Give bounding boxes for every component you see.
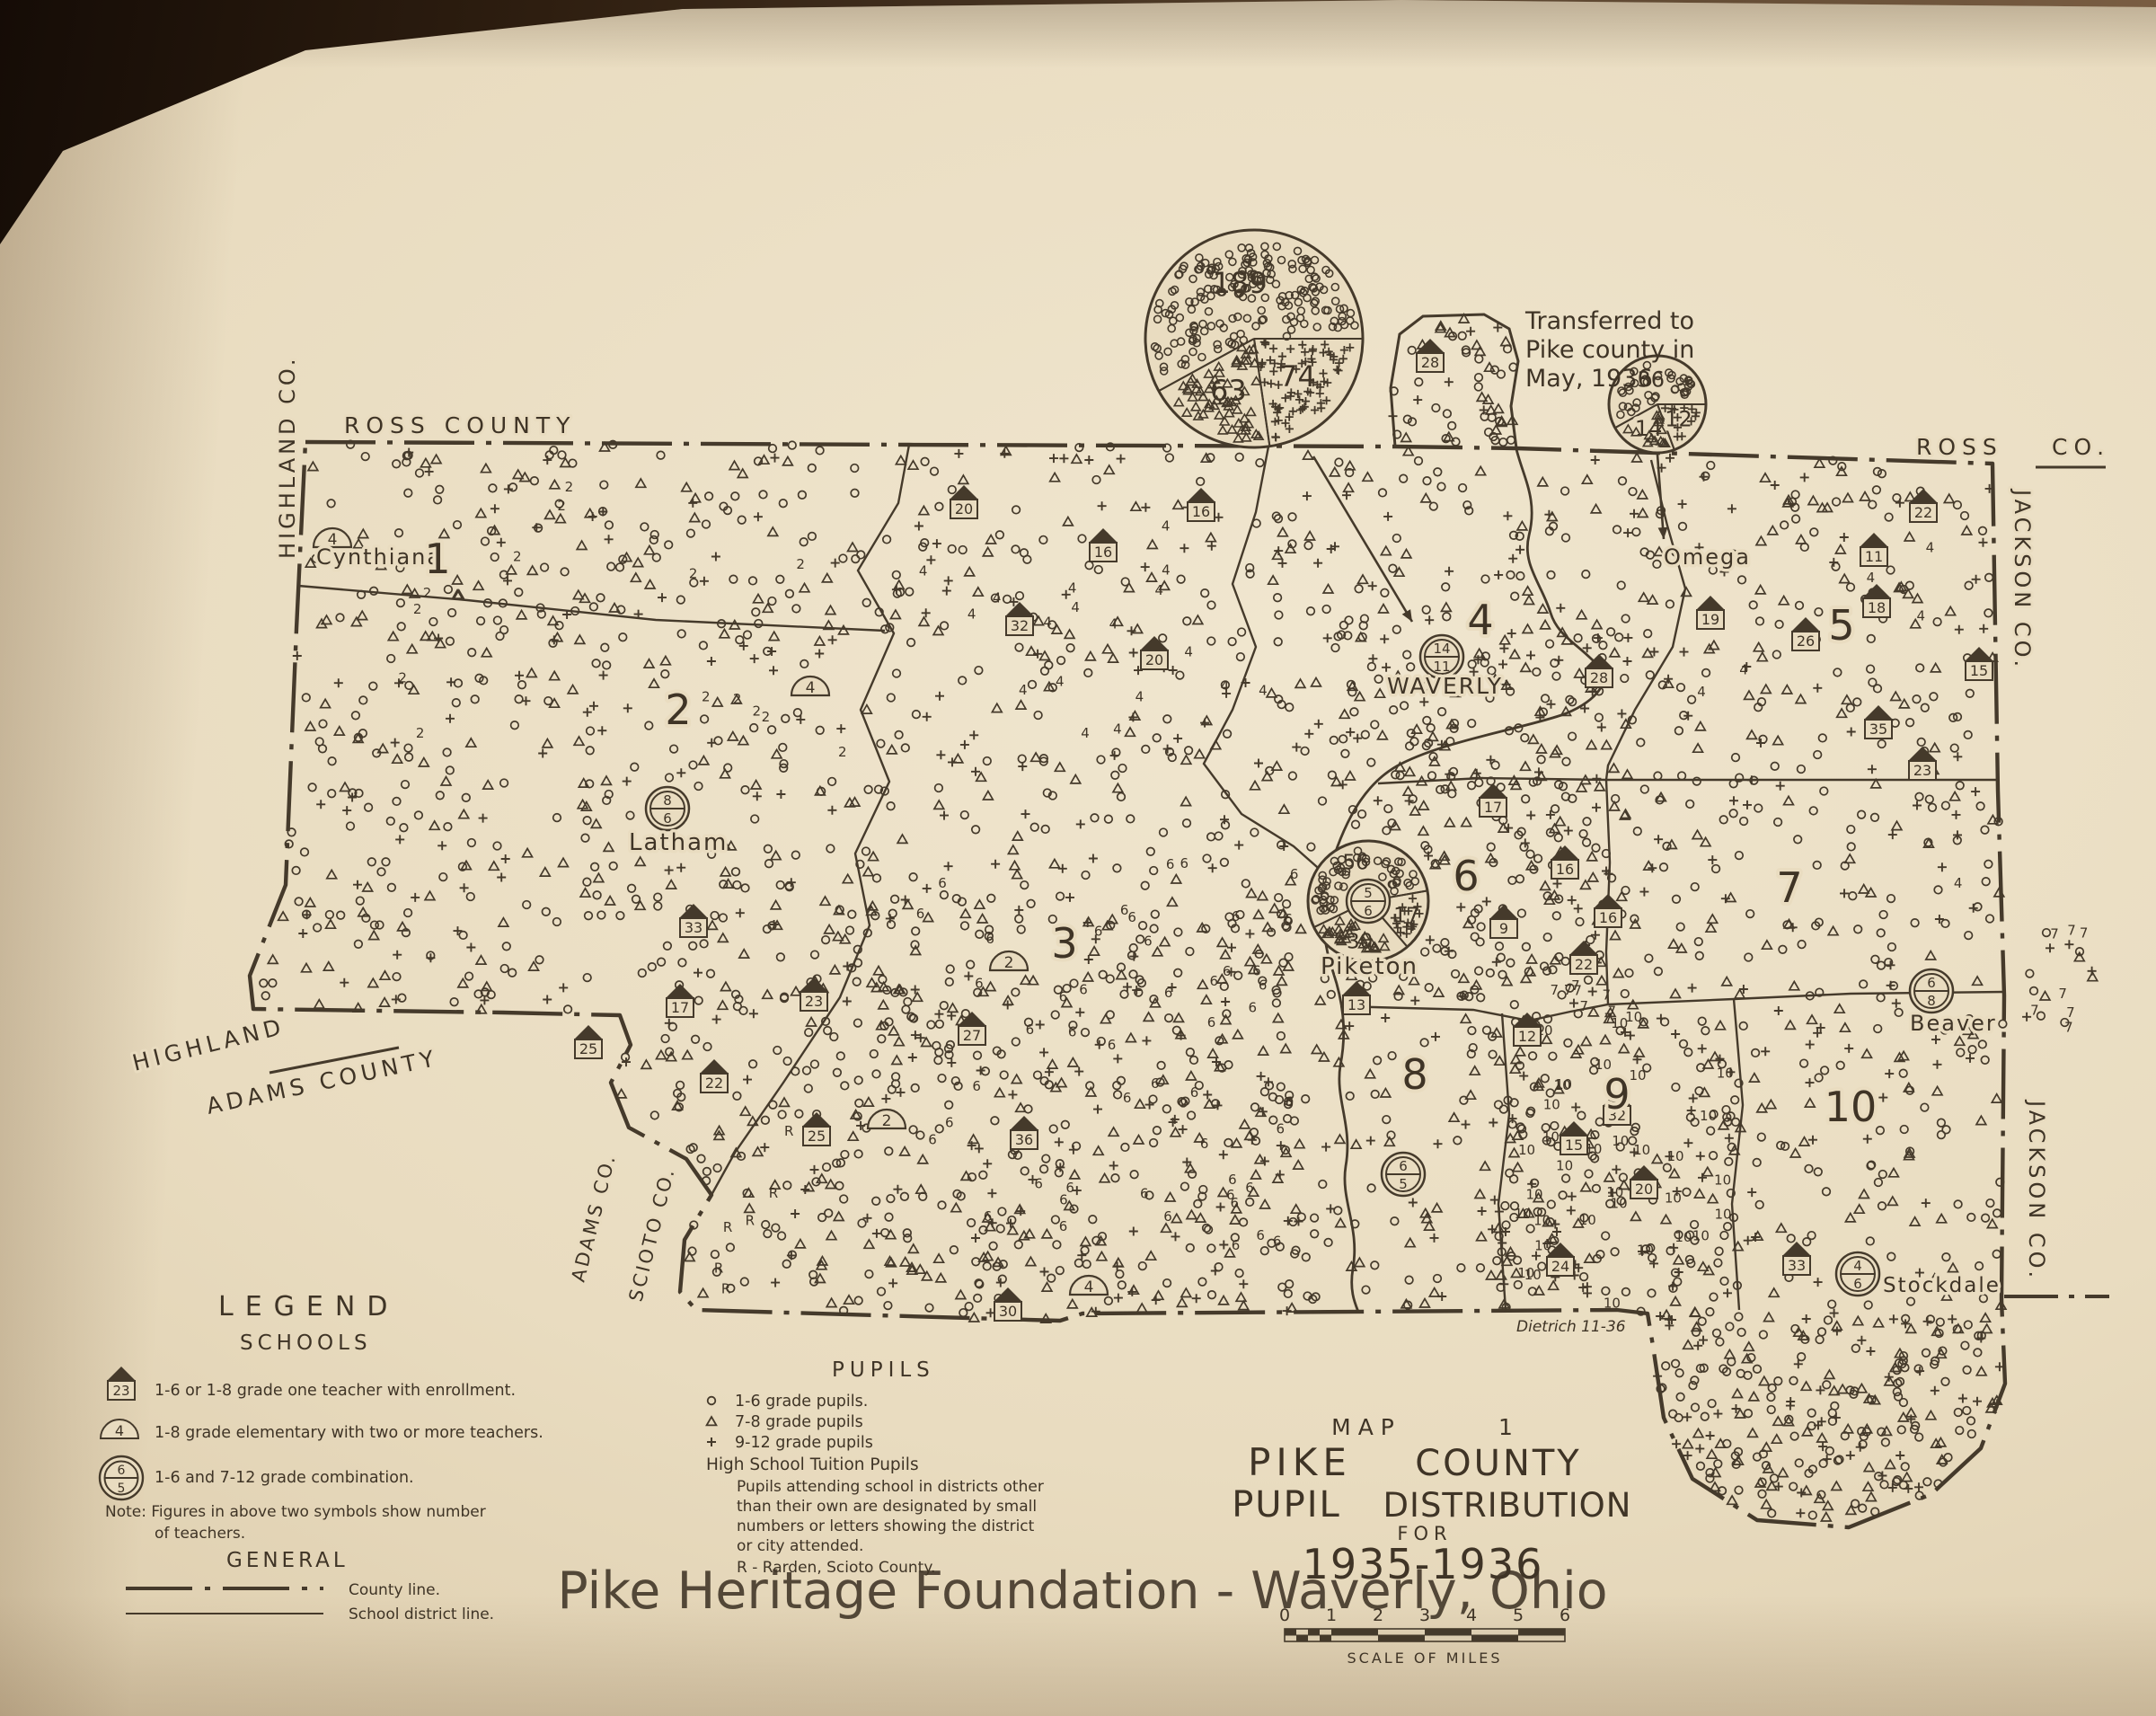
scale-caption: SCALE OF MILES [1347,1650,1503,1667]
pupil-dot-field: 6R442266444766102106106261026476R6R44446… [260,314,2098,1521]
tuition-district-numeral: 6 [1140,1185,1149,1201]
tuition-district-numeral: 4 [1917,607,1926,624]
combo-bottom-number: 6 [1853,1276,1862,1292]
tuition-district-numeral: 10 [1625,1009,1642,1025]
tuition-district-numeral: 6 [1059,989,1068,1005]
school-house-symbol: 26 [1791,617,1820,650]
tuition-district-numeral: 10 [1714,1207,1731,1223]
combo-top-number: 6 [1399,1158,1408,1174]
pie-to-omega-arrow-head [1658,527,1668,539]
tuition-district-numeral: 10 [1612,1133,1629,1149]
combo-bottom-number: 5 [1399,1176,1408,1192]
school-enrollment-number: 9 [1499,920,1508,937]
school-house-symbol: 23 [800,977,828,1011]
school-enrollment-number: 15 [1565,1137,1583,1154]
scale-bar-segment [1518,1629,1565,1635]
tuition-district-numeral: 4 [993,590,1002,606]
tuition-district-numeral: 2 [689,566,698,582]
school-enrollment-number: 28 [1590,669,1608,686]
tuition-district-numeral: 4 [1109,616,1118,632]
pupils-title: PUPILS [832,1358,935,1382]
house-roof-icon [1909,489,1938,503]
tuition-district-numeral: 6 [1273,1234,1282,1250]
tuition-district-numeral: 2 [733,691,742,707]
pupils-item-1-text: 1-6 grade pupils. [735,1393,868,1411]
house-roof-icon [1862,584,1891,598]
town-label: Omega [1664,544,1751,570]
teacher-count-number: 2 [882,1112,892,1130]
tuition-district-numeral: 4 [1697,684,1706,700]
house-roof-icon [679,904,708,918]
combo-top-number: 6 [1927,975,1936,991]
district-number: 6 [1453,852,1479,900]
school-enrollment-number: 22 [1914,504,1932,521]
school-house-symbol: 22 [1569,941,1598,974]
school-district-line [1606,460,1685,780]
tuition-district-numeral: 6 [1249,1000,1258,1016]
school-house-symbol: 20 [950,485,978,518]
tuition-district-numeral: 4 [1081,725,1090,741]
tuition-district-numeral: 6 [1164,985,1173,1001]
school-district-line [1204,447,1324,873]
school-house-symbol: 16 [1089,528,1118,562]
town-label: Piketon [1321,953,1418,980]
school-house-symbol: 33 [679,904,708,937]
county-label: JACKSON CO. [2010,488,2035,670]
tuition-line-3: numbers or letters showing the district [737,1517,1035,1535]
tuition-district-numeral: R [721,1280,730,1296]
district-number: 7 [1776,863,1802,912]
school-enrollment-number: 35 [1869,721,1887,738]
tuition-district-numeral: R [784,1123,793,1139]
school-house-symbol: 35 [1864,705,1893,739]
tuition-district-numeral: 7 [2080,924,2089,941]
transferred-note-line-2: Pike county in [1525,336,1694,364]
tuition-district-numeral: 10 [1524,1267,1542,1283]
house-roof-icon [802,1112,831,1127]
pupils-item-3-text: 9-12 grade pupils [735,1434,873,1452]
grade7-8-triangle-icon [707,1417,717,1425]
tuition-district-numeral: 4 [1155,582,1164,598]
tuition-district-numeral: 6 [985,931,994,947]
house-roof-icon [1696,596,1725,610]
school-house-symbol: 11 [1860,533,1888,566]
tuition-district-numeral: 6 [1144,933,1153,949]
school-district-line [711,445,909,1195]
cartographer-signature: Dietrich 11-36 [1516,1318,1626,1336]
tuition-district-numeral: 4 [1867,570,1876,586]
tuition-district-numeral: 7 [2067,923,2076,939]
tuition-district-numeral: 6 [1284,911,1293,927]
legend-combo-top: 6 [118,1464,126,1478]
tuition-district-numeral: 10 [1717,1066,1734,1082]
house-roof-icon [1782,1242,1811,1256]
legend-semicircle-number: 4 [115,1422,124,1439]
tuition-district-numeral: 4 [968,606,976,623]
school-house-symbol: 19 [1696,596,1725,629]
house-roof-icon [700,1059,729,1074]
legend-combination-icon: 6 5 [100,1456,143,1499]
county-label: HIGHLAND CO. [275,356,300,559]
tuition-district-numeral: 4 [1259,683,1268,699]
tuition-district-numeral: 6 [1108,1037,1117,1053]
county-label: ROSS COUNTY [344,412,576,438]
grade1-6-dot-icon [708,1397,716,1405]
tuition-district-numeral: 2 [398,670,407,686]
map-word: MAP [1331,1414,1401,1440]
tuition-district-numeral: 2 [413,601,422,617]
tuition-district-numeral: 10 [1543,1097,1560,1113]
house-roof-icon [574,1025,603,1039]
pie-slice-value: 14 [1635,416,1663,441]
tuition-district-numeral: 10 [1533,1213,1551,1229]
tuition-district-numeral: 10 [1525,1187,1542,1203]
tuition-district-numeral: 2 [796,556,805,572]
tuition-district-numeral: 2 [513,548,522,564]
school-house-symbol: 22 [1909,489,1938,522]
tuition-district-numeral: 7 [1571,977,1580,994]
school-house-symbol: 17 [1479,783,1507,817]
teacher-count-number: 4 [806,679,816,697]
school-house-symbol: 32 [1005,602,1034,635]
legend-item-1-text: 1-6 or 1-8 grade one teacher with enroll… [155,1382,516,1400]
town-label: Stockdale [1883,1274,2001,1297]
tuition-district-numeral: 4 [1071,599,1080,615]
tuition-district-numeral: 4 [1739,661,1748,677]
tuition-district-numeral: 4 [1954,875,1963,891]
school-house-symbol: 15 [1965,647,1993,680]
school-enrollment-number: 24 [1551,1258,1569,1275]
school-district-line [298,586,885,631]
tuition-district-numeral: 6 [1123,1090,1132,1106]
tuition-district-numeral: 4 [1135,689,1144,705]
school-house-symbol: 33 [1782,1242,1811,1275]
county-label: JACKSON CO. [2024,1099,2049,1281]
school-house-symbol: 20 [1630,1165,1658,1199]
combination-school-symbol: 68 [1910,969,1953,1013]
house-roof-icon [1569,941,1598,955]
school-enrollment-number: 20 [955,500,973,517]
house-roof-icon [1010,1116,1038,1130]
transferred-note-line-3: May, 1936 [1525,365,1653,393]
school-enrollment-number: 36 [1015,1131,1033,1148]
school-house-symbol: 28 [1585,654,1613,687]
title-pike: PIKE [1248,1440,1352,1484]
tuition-district-numeral: 6 [1223,963,1232,979]
tuition-district-numeral: 6 [1094,924,1103,940]
house-roof-icon [1140,636,1169,650]
elementary-school-symbol: 2 [990,951,1028,972]
tuition-district-numeral: R [746,1213,755,1229]
tuition-district-numeral: 6 [1034,1175,1043,1191]
tuition-district-numeral: 7 [1580,998,1589,1014]
elementary-school-symbol: 4 [791,677,829,697]
district-number: 1 [424,535,450,583]
school-house-symbol: 25 [574,1025,603,1058]
legend-general-title: GENERAL [226,1549,349,1572]
school-house-symbol: 25 [802,1112,831,1145]
tuition-district-numeral: 10 [1629,1067,1646,1084]
school-house-symbol: 17 [666,984,694,1017]
district-number: 8 [1401,1050,1427,1099]
house-roof-icon [1416,339,1445,353]
combo-top-number: 4 [1853,1258,1862,1274]
tuition-district-numeral: 2 [416,725,425,741]
tuition-district-numeral: 2 [753,703,762,719]
school-enrollment-number: 23 [1913,762,1931,779]
tuition-district-numeral: 2 [838,744,847,760]
legend-item-2-text: 1-8 grade elementary with two or more te… [155,1424,543,1442]
scale-bar-segment [1471,1635,1518,1641]
school-enrollment-number: 28 [1421,354,1439,371]
pupils-item-2-text: 7-8 grade pupils [735,1413,863,1431]
legend-one-teacher-house-icon: 23 [107,1367,136,1400]
pupil-dots-grade-1-6 [260,332,2083,1519]
school-enrollment-number: 23 [805,993,823,1010]
town-label: Latham [629,829,728,856]
house-roof-icon [107,1367,136,1381]
tuition-district-numeral: 6 [1232,908,1241,924]
tuition-line-4: or city attended. [737,1537,863,1555]
tuition-district-numeral: 6 [984,1208,993,1225]
county-label: ROSS [1916,434,2003,460]
house-roof-icon [1908,747,1937,761]
house-roof-icon [1489,905,1518,919]
tuition-district-numeral: 10 [1700,1108,1717,1124]
teacher-count-number: 2 [1004,954,1014,972]
combination-school-symbol: 46 [1836,1252,1879,1296]
school-house-symbol: 16 [1551,845,1579,879]
legend-schools-title: SCHOOLS [240,1331,372,1355]
legend-note-line-2: of teachers. [155,1525,245,1543]
tuition-district-numeral: 10 [1674,1229,1692,1245]
tuition-district-numeral: 6 [1245,1180,1254,1196]
legend-district-line-label: School district line. [349,1605,494,1623]
tuition-district-numeral: 6 [1151,1075,1160,1092]
tuition-district-numeral: 6 [1059,1218,1068,1234]
district-number: 10 [1825,1083,1878,1131]
tuition-district-numeral: 6 [1226,1187,1235,1203]
tuition-district-numeral: 7 [2066,1004,2075,1021]
tuition-district-numeral: 7 [2030,1003,2039,1019]
tuition-district-numeral: 6 [1127,909,1136,925]
tuition-title: High School Tuition Pupils [706,1455,919,1474]
tuition-district-numeral: 6 [1068,1023,1077,1039]
tuition-district-numeral: 10 [1542,1129,1560,1145]
county-label: ADAMS CO. [568,1151,621,1284]
tuition-district-numeral: 10 [1637,1243,1654,1259]
house-roof-icon [1089,528,1118,543]
tuition-district-numeral: 10 [1692,1227,1710,1243]
school-enrollment-number: 20 [1145,651,1163,668]
tuition-district-numeral: 10 [1604,1295,1621,1311]
tuition-district-numeral: 6 [1079,982,1088,998]
tuition-district-numeral: 6 [972,1078,981,1094]
school-enrollment-number: 27 [963,1027,981,1044]
legend-county-line-label: County line. [349,1581,440,1599]
house-roof-icon [1187,488,1215,502]
school-house-symbol: 36 [1010,1116,1038,1149]
school-enrollment-number: 16 [1094,544,1112,561]
school-district-line [1606,780,1610,1004]
elementary-school-symbol: 2 [868,1110,906,1130]
tuition-district-numeral: 6 [1232,1237,1241,1253]
combination-school-symbol: 86 [646,787,689,830]
tuition-district-numeral: 6 [1190,1084,1199,1101]
school-enrollment-number: 17 [671,999,689,1016]
town-label: WAVERLY [1387,673,1503,699]
tuition-district-numeral: 6 [1166,856,1175,872]
district-number: 3 [1051,919,1077,968]
school-enrollment-number: 25 [808,1128,826,1145]
tuition-district-numeral: 7 [1551,982,1560,998]
tuition-district-numeral: 7 [1603,986,1612,1003]
tuition-district-numeral: 4 [1221,678,1230,694]
tuition-district-numeral: 6 [916,906,925,922]
county-label: CO. [2052,434,2110,460]
house-roof-icon [1342,981,1371,995]
scale-bar-segment [1320,1635,1331,1641]
school-enrollment-number: 18 [1868,599,1886,616]
tuition-district-numeral: 10 [1518,1142,1535,1158]
house-roof-icon [950,485,978,500]
legend-combo-bottom: 5 [118,1482,126,1496]
tuition-district-numeral: 6 [1259,977,1268,994]
tuition-district-numeral: 4 [1019,682,1028,698]
tuition-district-numeral: 6 [1210,973,1219,989]
tuition-district-numeral: 4 [1926,540,1935,556]
school-house-symbol: 15 [1560,1121,1588,1154]
tuition-district-numeral: R [723,1219,732,1235]
tuition-district-numeral: 4 [1113,721,1122,738]
school-house-symbol: 9 [1489,905,1518,938]
tuition-district-numeral: 6 [938,875,947,891]
school-enrollment-number: 33 [1788,1257,1806,1274]
tuition-line-1: Pupils attending school in districts oth… [737,1478,1044,1496]
tuition-line-2: than their own are designated by small [737,1498,1037,1516]
district-number: 5 [1828,601,1854,650]
scale-bar-segment [1425,1629,1471,1635]
county-summary-pie: 1896374 [1145,230,1363,447]
town-label: Cynthiana [316,544,442,570]
tuition-district-numeral: R [714,1260,723,1277]
school-house-symbol: 22 [700,1059,729,1092]
combo-bottom-number: 8 [1927,993,1936,1009]
school-house-symbol: 16 [1187,488,1215,521]
school-enrollment-number: 15 [1970,662,1988,679]
combo-top-number: 8 [663,792,672,809]
tuition-district-numeral: 4 [1043,615,1052,631]
school-enrollment-number: 32 [1011,617,1029,634]
tuition-district-numeral: 6 [928,1131,937,1147]
school-enrollment-number: 16 [1192,503,1210,520]
legend: LEGEND SCHOOLS 23 1-6 or 1-8 grade one t… [100,1291,543,1623]
scale-bar-segment [1308,1629,1320,1635]
house-roof-icon [1864,705,1893,720]
school-enrollment-number: 11 [1865,548,1883,565]
legend-item-3-text: 1-6 and 7-12 grade combination. [155,1469,414,1487]
tuition-district-numeral: 6 [1200,1136,1209,1152]
school-district-line [1378,778,1606,783]
tuition-district-numeral: 6 [1290,866,1299,882]
title-pupil: PUPIL [1232,1484,1341,1526]
tuition-district-numeral: 6 [1163,1208,1172,1225]
tuition-district-numeral: 10 [1554,1077,1571,1093]
school-enrollment-number: 25 [579,1040,597,1057]
piketon-summary-pie: 56301756 [1308,841,1428,961]
county-label: HIGHLAND [129,1013,287,1076]
scale-bar-segment [1331,1629,1378,1635]
teacher-count-number: 4 [1084,1278,1094,1296]
town-label: Beaver [1910,1011,1997,1036]
title-distribution: DISTRIBUTION [1383,1486,1632,1525]
tuition-district-numeral: 4 [919,563,928,579]
tuition-district-numeral: 6 [1059,1192,1068,1208]
house-roof-icon [1791,617,1820,632]
combo-top-number: 14 [1433,641,1450,657]
tuition-district-numeral: 4 [1068,579,1077,596]
tuition-district-numeral: 4 [1184,644,1193,660]
tuition-district-numeral: 10 [1515,1206,1532,1222]
tuition-district-numeral: 10 [1556,1158,1573,1174]
tuition-district-numeral: 4 [1056,674,1065,690]
combination-school-symbol: 1411 [1420,635,1463,678]
tuition-district-numeral: 2 [762,709,771,725]
school-enrollment-number: 16 [1599,909,1617,926]
house-roof-icon [1005,602,1034,616]
tuition-district-numeral: 7 [2064,1019,2073,1035]
school-enrollment-number: 19 [1701,611,1719,628]
county-label: SCIOTO CO. [625,1164,679,1304]
school-enrollment-number: 20 [1635,1181,1653,1198]
tuition-district-numeral: 6 [945,1114,954,1130]
school-enrollment-number: 30 [999,1303,1017,1320]
tuition-district-numeral: 7 [1604,1010,1613,1026]
legend-note-line-1: Note: Figures in above two symbols show … [105,1503,486,1521]
tuition-district-numeral: 7 [2058,986,2067,1002]
house-roof-icon [1860,533,1888,547]
combo-bottom-number: 6 [663,810,672,827]
combination-school-symbol: 65 [1382,1153,1425,1196]
tuition-district-numeral: 6 [1252,962,1261,978]
tuition-district-numeral: 10 [1714,1172,1731,1189]
tuition-district-numeral: 6 [1207,1014,1216,1030]
school-enrollment-number: 12 [1518,1028,1536,1045]
school-house-symbol: 13 [1342,981,1371,1014]
map-number: 1 [1498,1414,1513,1440]
title-county: COUNTY [1415,1443,1581,1484]
county-label: ADAMS COUNTY [204,1045,440,1119]
legend-title: LEGEND [218,1291,399,1322]
school-enrollment-number: 17 [1484,799,1502,816]
tuition-district-numeral: 10 [1666,1148,1683,1164]
house-roof-icon [666,984,694,998]
school-enrollment-number: 16 [1556,861,1574,878]
elementary-school-symbol: 4 [1070,1276,1108,1296]
tuition-district-numeral: 6 [1026,1022,1035,1038]
school-enrollment-number: 22 [705,1075,723,1092]
tuition-district-numeral: 4 [1162,562,1171,579]
boundary-lines [250,314,2109,1527]
tuition-district-numeral: 6 [1180,855,1189,871]
tuition-district-numeral: 2 [702,688,711,704]
tuition-district-numeral: 10 [1579,1212,1596,1228]
scale-bar-segment [1378,1635,1425,1641]
district-number: 4 [1467,596,1493,644]
school-house-symbol: 18 [1862,584,1891,617]
pie-center-bottom: 6 [1364,903,1373,919]
scale-bar-segment [1296,1635,1308,1641]
